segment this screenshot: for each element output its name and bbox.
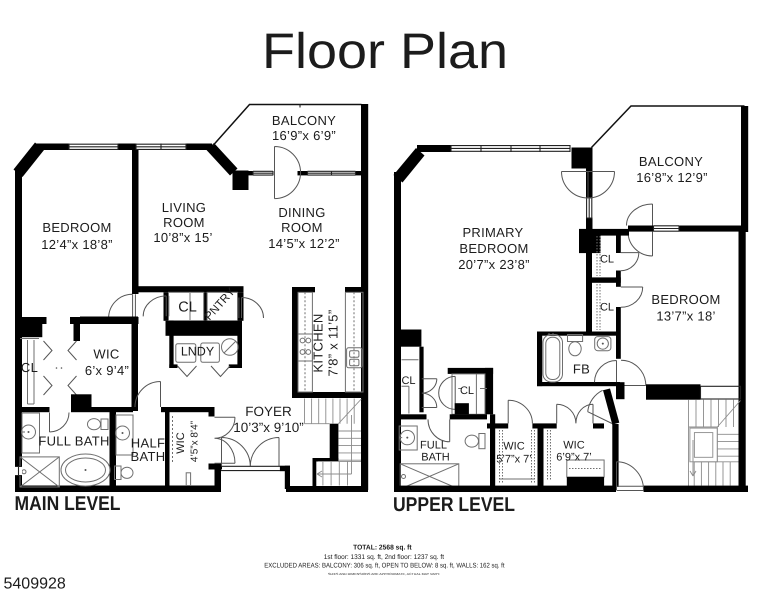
svg-text:BEDROOM: BEDROOM [459, 241, 528, 256]
svg-text:20’7”x 23’8”: 20’7”x 23’8” [458, 257, 530, 272]
svg-text:FULL BATH: FULL BATH [38, 434, 109, 449]
svg-text:LIVING: LIVING [162, 200, 206, 215]
svg-text:CL: CL [178, 300, 197, 316]
svg-text:ROOM: ROOM [281, 220, 323, 235]
svg-text:SIZES AND DIMENSIONS ARE APPRO: SIZES AND DIMENSIONS ARE APPROXIMATE, AC… [328, 572, 440, 576]
svg-text:BATH: BATH [131, 449, 166, 464]
svg-text:16’8”x 12’9”: 16’8”x 12’9” [636, 170, 708, 185]
svg-text:BATH: BATH [421, 452, 450, 464]
svg-text:WIC: WIC [563, 440, 584, 452]
svg-text:6’9”x 7’: 6’9”x 7’ [556, 452, 591, 464]
svg-text:BEDROOM: BEDROOM [42, 220, 111, 235]
svg-text:6’x 9’4”: 6’x 9’4” [85, 363, 129, 378]
svg-text:KITCHEN: KITCHEN [311, 313, 326, 372]
svg-text:FULL: FULL [420, 440, 447, 452]
svg-text:4’5”x 8’4”: 4’5”x 8’4” [190, 421, 201, 462]
svg-text:BEDROOM: BEDROOM [651, 292, 720, 307]
svg-text:10’8”x 15’: 10’8”x 15’ [153, 230, 212, 245]
svg-text:FOYER: FOYER [245, 404, 292, 419]
svg-text:CL: CL [21, 360, 38, 375]
svg-text:CL: CL [401, 375, 415, 387]
svg-text:10’3”x 9’10”: 10’3”x 9’10” [233, 420, 304, 435]
svg-text:LNDY: LNDY [181, 345, 215, 359]
svg-text:CL: CL [600, 254, 614, 266]
svg-text:CL: CL [600, 302, 614, 314]
svg-text:CL: CL [460, 385, 474, 397]
svg-text:Floor Plan: Floor Plan [262, 23, 508, 79]
svg-text:13’7”x 18’: 13’7”x 18’ [656, 309, 715, 324]
svg-text:1st floor: 1331 sq. ft, 2nd fl: 1st floor: 1331 sq. ft, 2nd floor: 1237 … [324, 554, 444, 561]
svg-text:16’9”x 6’9”: 16’9”x 6’9” [272, 128, 336, 143]
svg-text:12’4”x 18’8”: 12’4”x 18’8” [41, 237, 113, 252]
svg-text:ROOM: ROOM [163, 215, 205, 230]
svg-text:WIC: WIC [175, 432, 187, 453]
svg-text:EXCLUDED AREAS: BALCONY: 306 s: EXCLUDED AREAS: BALCONY: 306 sq. ft, OPE… [264, 563, 504, 570]
svg-text:MAIN LEVEL: MAIN LEVEL [15, 493, 121, 515]
svg-text:TOTAL: 2568 sq. ft: TOTAL: 2568 sq. ft [353, 544, 412, 552]
svg-text:BALCONY: BALCONY [639, 154, 703, 169]
svg-text:14’5”x 12’2”: 14’5”x 12’2” [268, 236, 340, 251]
svg-text:DINING: DINING [278, 205, 325, 220]
svg-text:5’7”x 7’: 5’7”x 7’ [496, 454, 531, 466]
svg-text:7’8” x 11’5”: 7’8” x 11’5” [326, 310, 341, 377]
svg-text:BALCONY: BALCONY [272, 113, 336, 128]
svg-text:PRIMARY: PRIMARY [462, 225, 523, 240]
svg-text:UPPER LEVEL: UPPER LEVEL [393, 494, 515, 516]
svg-text:WIC: WIC [503, 441, 524, 453]
svg-text:WIC: WIC [93, 347, 119, 362]
svg-text:5409928: 5409928 [4, 576, 66, 593]
svg-text:FB: FB [573, 362, 590, 377]
